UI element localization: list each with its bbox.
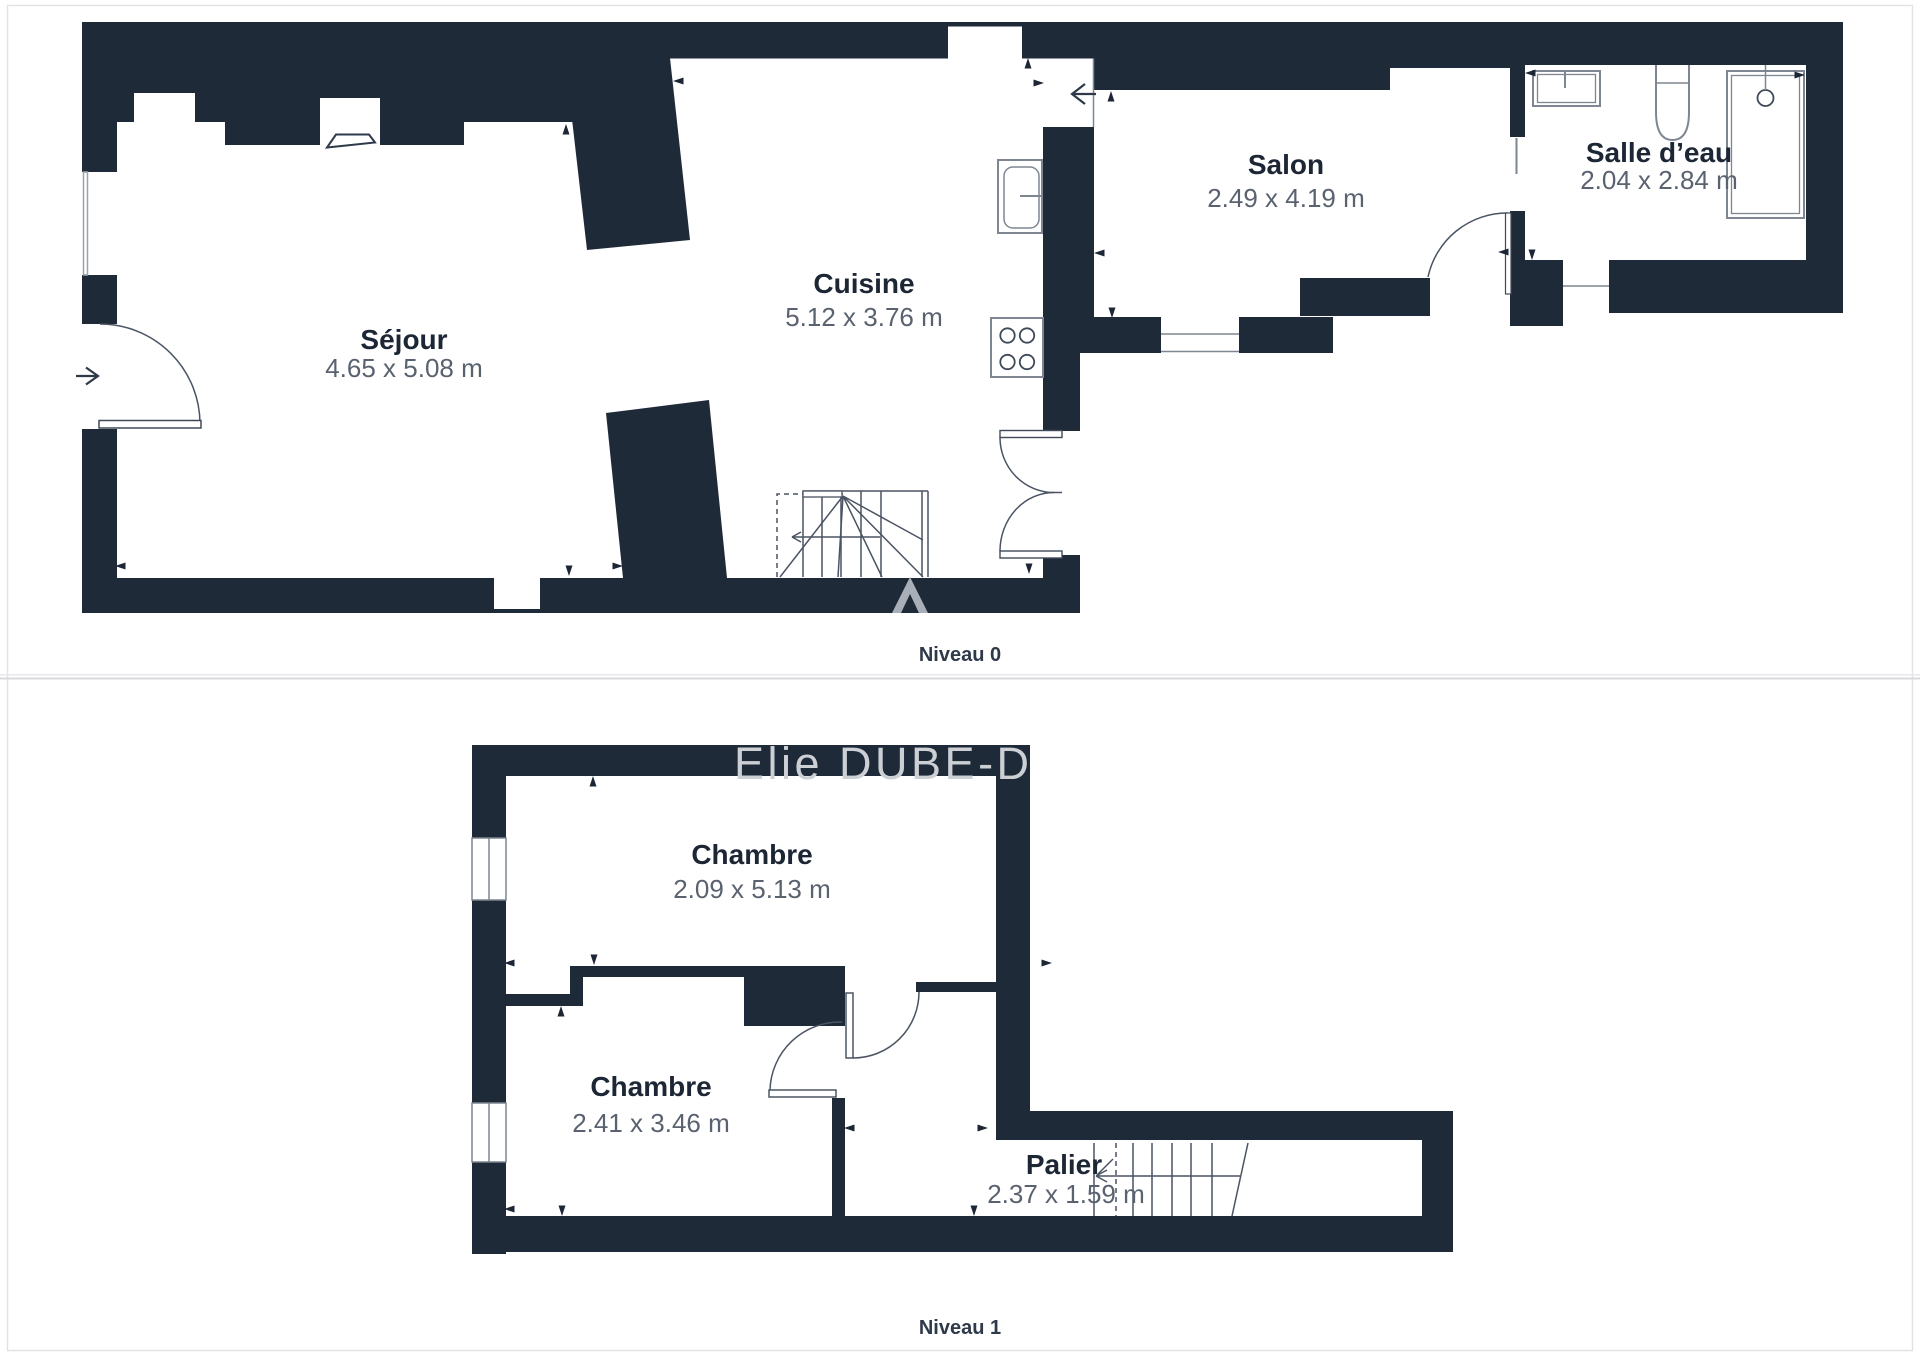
svg-text:2.49 x 4.19 m: 2.49 x 4.19 m xyxy=(1207,183,1365,213)
svg-text:Niveau 1: Niveau 1 xyxy=(919,1317,1001,1339)
svg-text:Chambre: Chambre xyxy=(590,1071,711,1102)
svg-text:Séjour: Séjour xyxy=(360,324,447,355)
svg-text:5.12 x 3.76 m: 5.12 x 3.76 m xyxy=(785,302,943,332)
svg-text:2.37 x 1.59 m: 2.37 x 1.59 m xyxy=(987,1179,1145,1209)
svg-text:2.04 x 2.84 m: 2.04 x 2.84 m xyxy=(1580,165,1738,195)
svg-text:2.09 x 5.13 m: 2.09 x 5.13 m xyxy=(673,874,831,904)
svg-text:Palier: Palier xyxy=(1026,1149,1102,1180)
svg-text:Salon: Salon xyxy=(1248,149,1324,180)
svg-text:2.41 x 3.46 m: 2.41 x 3.46 m xyxy=(572,1108,730,1138)
svg-text:Niveau 0: Niveau 0 xyxy=(919,644,1001,666)
svg-text:Elie DUBE-D: Elie DUBE-D xyxy=(734,738,1033,789)
svg-text:4.65 x 5.08 m: 4.65 x 5.08 m xyxy=(325,353,483,383)
svg-text:Chambre: Chambre xyxy=(691,839,812,870)
svg-text:Salle d’eau: Salle d’eau xyxy=(1586,137,1732,168)
svg-text:Cuisine: Cuisine xyxy=(813,268,914,299)
